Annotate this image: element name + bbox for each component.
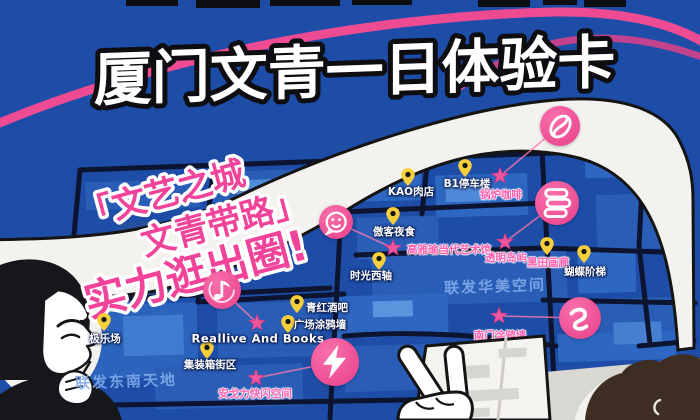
foreground-art <box>0 0 700 420</box>
poster: 厦门文青一日体验卡 「文艺之城 文青带路」 实力逛出圈! 联发华美空间联发东南天… <box>0 0 700 420</box>
character-right-hair <box>585 354 700 420</box>
